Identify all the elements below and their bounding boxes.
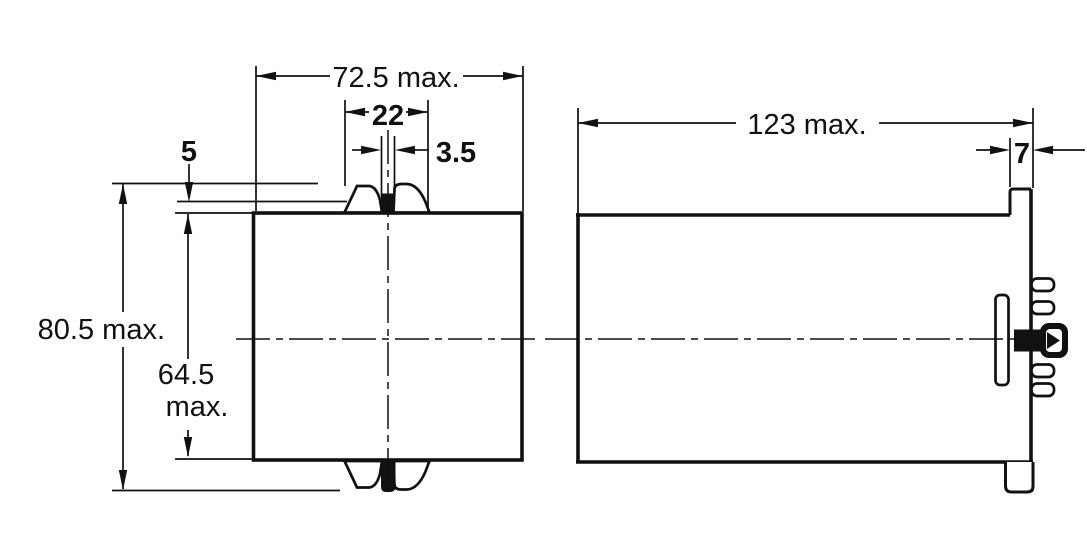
dim-latch-span: 22 [345,100,428,132]
dim-hook-label: 5 [181,136,197,168]
dim-latch-span-label: 22 [372,100,404,132]
drawing-canvas: 72.5 max. 22 3.5 5 [0,0,1087,540]
arrowhead-down-icon [119,470,127,490]
dim-width: 72.5 max. [256,62,523,94]
dim-depth-label: 123 max. [747,109,866,141]
bottom-latch-left-hump [345,461,383,488]
dim-rear-tab: 7 [976,138,1085,170]
terminal-pin-3 [1032,365,1055,378]
arrowhead-right-icon [361,146,381,154]
arrowhead-left-icon [395,146,415,154]
rear-flange-plate [996,295,1009,385]
locking-lever [1014,323,1068,358]
dim-slot: 3.5 [352,137,476,169]
terminal-pin-1 [1032,279,1055,292]
side-view: 123 max. 7 [545,108,1085,492]
dimension-drawing: 72.5 max. 22 3.5 5 [0,0,1087,540]
lever-bar [1014,330,1044,352]
dim-overall-height: 80.5 max. [38,184,165,490]
top-latch-left-hump [345,186,383,213]
arrowhead-right-icon [1013,119,1033,127]
front-view: 72.5 max. 22 3.5 5 [38,62,541,492]
dim-slot-label: 3.5 [436,137,476,169]
dim-body-height: 64.5 max. [158,214,229,457]
arrowhead-right-icon [990,146,1010,154]
arrowhead-down-icon [184,437,192,457]
bottom-latch-right-hump [394,461,430,490]
arrowhead-left-icon [1033,146,1053,154]
arrowhead-left-icon [256,72,276,80]
arrowhead-left-icon [578,119,598,127]
arrowhead-down-icon [185,182,193,202]
rear-bottom-tab [1006,462,1034,492]
arrowhead-right-icon [503,72,523,80]
dim-body-height-suffix: max. [166,391,229,423]
dim-hook: 5 [181,136,197,202]
terminal-pin-4 [1032,384,1055,397]
rear-top-tab [1010,189,1031,215]
arrowhead-right-icon [408,108,428,116]
dim-body-height-value: 64.5 [158,359,214,391]
arrowhead-up-icon [184,214,192,234]
dim-overall-height-label: 80.5 max. [38,314,165,346]
dim-width-label: 72.5 max. [332,62,459,94]
arrowhead-up-icon [119,184,127,204]
dim-depth: 123 max. [578,109,1033,141]
top-latch-right-hump [394,184,430,213]
arrowhead-left-icon [345,108,365,116]
dim-rear-tab-label: 7 [1014,138,1030,170]
terminal-pin-2 [1032,302,1055,315]
